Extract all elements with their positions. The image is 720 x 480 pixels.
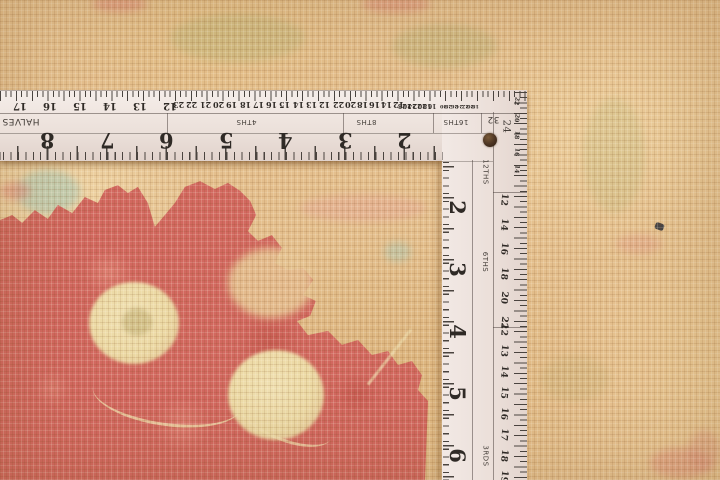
ruler-divider xyxy=(493,112,494,480)
ruler-number: 4 xyxy=(278,130,293,151)
ruler-number: 16 xyxy=(43,100,57,110)
ruler-number: 18 xyxy=(498,449,508,462)
ruler-number: 21 xyxy=(200,101,211,109)
ruler-number: 18 xyxy=(513,131,520,140)
corner-number-24: 24 xyxy=(500,120,511,134)
ruler-number: 13 xyxy=(498,344,508,357)
ruler-number: 17 xyxy=(13,100,27,110)
ruler-number: 3 xyxy=(447,262,468,277)
ruler-number: 2 xyxy=(397,130,412,151)
ruler-number: 4 xyxy=(447,324,468,339)
ruler-number: 20 xyxy=(513,114,520,123)
ruler-number: 8 xyxy=(40,130,55,151)
ruler-number: 17 xyxy=(498,428,508,441)
ruler-number: 20 xyxy=(345,101,356,109)
ruler-number: 12 xyxy=(498,193,508,206)
ruler-number: 13 xyxy=(133,100,147,110)
ruler-number: 7 xyxy=(100,130,115,151)
ruler-number: 22 xyxy=(333,101,344,109)
ruler-number: 5 xyxy=(219,130,234,151)
scale-label-3rds: 3RDS xyxy=(482,445,490,466)
ruler-number: 14 xyxy=(103,100,117,110)
ruler-number: 16 xyxy=(498,407,508,420)
ruler-shadow xyxy=(435,162,442,480)
ruler-number: 16 xyxy=(513,148,520,157)
ruler-number: 23 xyxy=(173,101,184,109)
ruler-number: 22 xyxy=(513,97,520,106)
ruler-number: 16 xyxy=(428,102,436,108)
scale-label-8ths: 8THS xyxy=(356,118,376,126)
scale-label-6ths: 6THS xyxy=(481,252,489,272)
ruler-number: 19 xyxy=(498,470,508,480)
scale-label-32nds: 32 xyxy=(487,114,499,124)
ruler-number: 12 xyxy=(319,101,330,109)
scale-divider xyxy=(481,113,482,133)
ruler-number: 15 xyxy=(498,386,508,399)
ruler-number: 16 xyxy=(266,101,277,109)
scale-label-16ths: 16THS xyxy=(443,118,468,126)
ruler-divider xyxy=(472,160,473,480)
ruler-number: 6 xyxy=(447,448,468,463)
rivet-hole xyxy=(483,133,497,147)
ruler-number: 2 xyxy=(447,200,468,215)
ruler-number: 18 xyxy=(240,101,251,109)
ruler-number: 14 xyxy=(498,217,508,230)
ruler-divider xyxy=(0,113,527,114)
ruler-number: 15 xyxy=(279,101,290,109)
ruler-number: 18 xyxy=(357,101,368,109)
scale-divider xyxy=(433,113,434,133)
ruler-number: 17 xyxy=(253,101,264,109)
ruler-number: 19 xyxy=(226,101,237,109)
ruler-number: 6 xyxy=(159,130,174,151)
scale-divider xyxy=(493,192,527,193)
scale-label-halves: HALVES xyxy=(2,116,40,126)
ruler-number: 22 xyxy=(186,101,197,109)
ruler-number: 5 xyxy=(447,386,468,401)
ruler-number: 16 xyxy=(498,242,508,255)
ruler-divider xyxy=(0,133,490,134)
rug-photo: HALVES 4THS 8THS 16THS 32 12THS 6THS 3RD… xyxy=(0,0,720,480)
scale-label-4ths: 4THS xyxy=(236,118,256,126)
framing-square: HALVES 4THS 8THS 16THS 32 12THS 6THS 3RD… xyxy=(0,0,720,480)
ruler-number: 14 xyxy=(381,101,392,109)
ruler-number: 14 xyxy=(513,165,520,174)
ruler-number: 20 xyxy=(498,291,508,304)
ruler-number: 16 xyxy=(369,101,380,109)
ruler-number: 14 xyxy=(293,101,304,109)
ruler-number: 12 xyxy=(498,323,508,336)
ruler-number: 20 xyxy=(213,101,224,109)
ruler-number: 14 xyxy=(498,365,508,378)
scale-label-12ths: 12THS xyxy=(482,159,490,184)
ruler-number: 13 xyxy=(306,101,317,109)
ruler-number: 18 xyxy=(498,266,508,279)
ruler-number: 3 xyxy=(338,130,353,151)
ruler-number: 18 xyxy=(472,103,479,108)
ruler-number: 15 xyxy=(73,100,87,110)
